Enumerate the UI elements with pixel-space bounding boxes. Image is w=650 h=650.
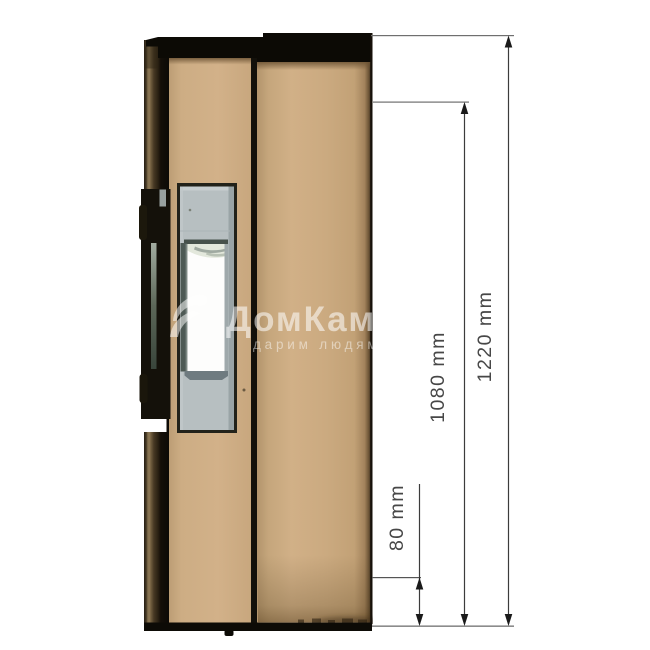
svg-text:1220 mm: 1220 mm (474, 291, 496, 383)
svg-text:ДомКамин: ДомКамин (226, 300, 422, 339)
svg-text:80 mm: 80 mm (386, 484, 408, 551)
svg-text:1080 mm: 1080 mm (427, 331, 449, 423)
svg-text:дарим людям тепло: дарим людям тепло (253, 337, 443, 352)
